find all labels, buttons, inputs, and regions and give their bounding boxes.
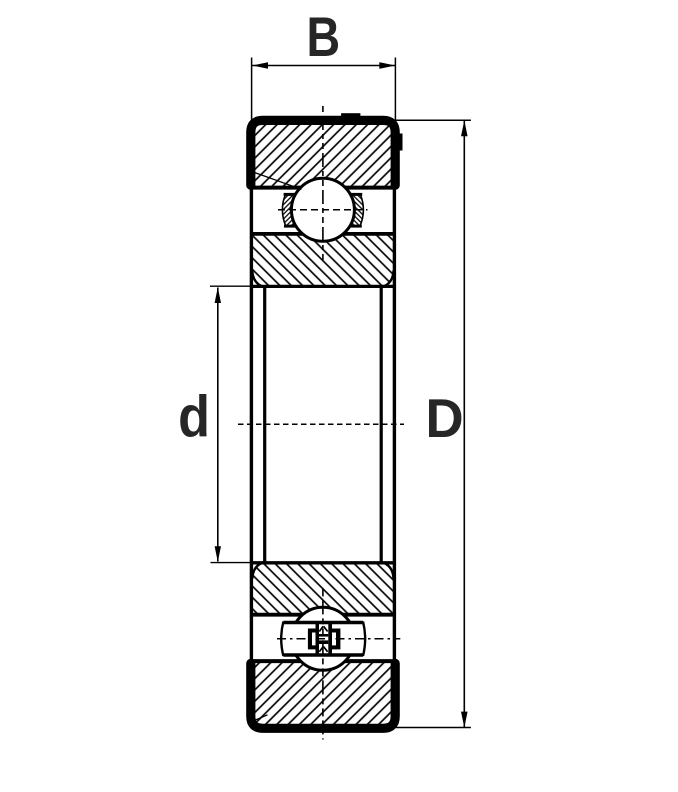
svg-text:D: D <box>426 388 464 449</box>
svg-text:d: d <box>178 384 210 449</box>
svg-text:B: B <box>306 6 340 68</box>
